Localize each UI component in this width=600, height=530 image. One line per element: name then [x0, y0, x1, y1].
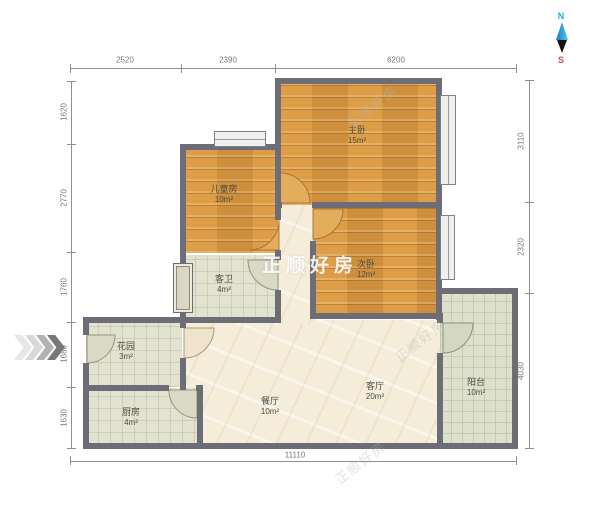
dimension-line — [70, 68, 517, 69]
dimension-line — [529, 80, 530, 449]
dimension-tick — [181, 64, 182, 73]
dimension-tick — [67, 322, 76, 323]
dimension-tick — [525, 202, 534, 203]
room-label-living: 客厅 20m² — [366, 381, 384, 401]
dimension-tick — [67, 252, 76, 253]
room-label-kitchen: 厨房 4m² — [122, 407, 140, 427]
wall-segment — [180, 317, 186, 328]
door-arc-master-bedroom — [280, 173, 310, 203]
dimension-tick — [70, 456, 71, 465]
dim-left-5: 1630 — [60, 409, 69, 427]
wall-segment — [275, 250, 281, 260]
wall-segment — [310, 313, 442, 319]
dimension-tick — [525, 448, 534, 449]
door-arc-entrance — [87, 335, 115, 363]
dimension-tick — [516, 64, 517, 73]
compass-needle-icon — [553, 21, 571, 55]
compass-north-label: N — [558, 11, 565, 21]
wall-segment — [312, 202, 442, 208]
wall-segment — [197, 385, 203, 443]
room-label-dining: 餐厅 10m² — [261, 396, 279, 416]
door-arc-kitchen — [169, 390, 197, 418]
door-arc-children-room — [249, 220, 279, 250]
dim-left-3: 1760 — [60, 278, 69, 296]
dimension-line — [71, 81, 72, 449]
window-children-room — [214, 131, 266, 147]
dimension-tick — [70, 64, 71, 73]
wall-segment — [310, 241, 316, 315]
room-label-balcony: 阳台 10m² — [467, 377, 485, 397]
room-label-children: 儿童房 10m² — [210, 184, 237, 204]
door-arc-garden-dining — [184, 328, 214, 358]
wall-segment — [83, 385, 169, 391]
dimension-tick — [525, 80, 534, 81]
dimension-tick — [275, 64, 276, 73]
wall-segment — [83, 443, 518, 449]
wall-segment — [437, 288, 518, 294]
wall-segment — [83, 317, 89, 335]
dimension-line — [70, 461, 517, 462]
window-second-bedroom — [440, 215, 455, 280]
dimension-tick — [525, 293, 534, 294]
dim-right-2: 2320 — [517, 238, 526, 256]
wall-segment — [275, 84, 281, 220]
dim-right-1: 3110 — [517, 132, 526, 149]
dimension-tick — [67, 448, 76, 449]
entrance-arrows-icon — [14, 335, 58, 360]
wall-segment — [275, 78, 442, 84]
door-arc-bathroom — [248, 260, 278, 290]
wall-segment — [437, 313, 443, 323]
floor-plan: 儿童房 10m² 主卧 15m² 次卧 12m² 客卫 4m² 花园 3m² 厨… — [0, 0, 600, 530]
dim-bottom-1: 11110 — [285, 451, 305, 460]
room-label-garden: 花园 3m² — [117, 341, 135, 361]
room-label-master: 主卧 15m² — [348, 125, 366, 145]
dimension-tick — [67, 387, 76, 388]
dimension-tick — [67, 144, 76, 145]
wall-segment — [437, 353, 443, 443]
dim-top-1: 2520 — [116, 56, 134, 65]
window-master-bedroom — [440, 95, 456, 185]
dimension-tick — [67, 81, 76, 82]
room-label-bathroom: 客卫 4m² — [215, 274, 233, 294]
door-arc-second-bedroom — [313, 209, 343, 239]
dim-right-3: 4030 — [517, 362, 526, 380]
dim-top-2: 2390 — [219, 56, 237, 65]
room-label-second-bedroom: 次卧 12m² — [357, 259, 375, 279]
dim-left-1: 1620 — [60, 103, 69, 121]
compass-south-label: S — [558, 55, 564, 65]
dimension-tick — [516, 456, 517, 465]
dim-left-2: 2770 — [60, 189, 69, 207]
wall-segment — [83, 363, 89, 449]
wall-segment — [180, 358, 186, 390]
window-bathroom-shaft — [173, 263, 193, 313]
dim-top-3: 6200 — [387, 56, 405, 65]
door-arc-balcony — [443, 323, 473, 353]
